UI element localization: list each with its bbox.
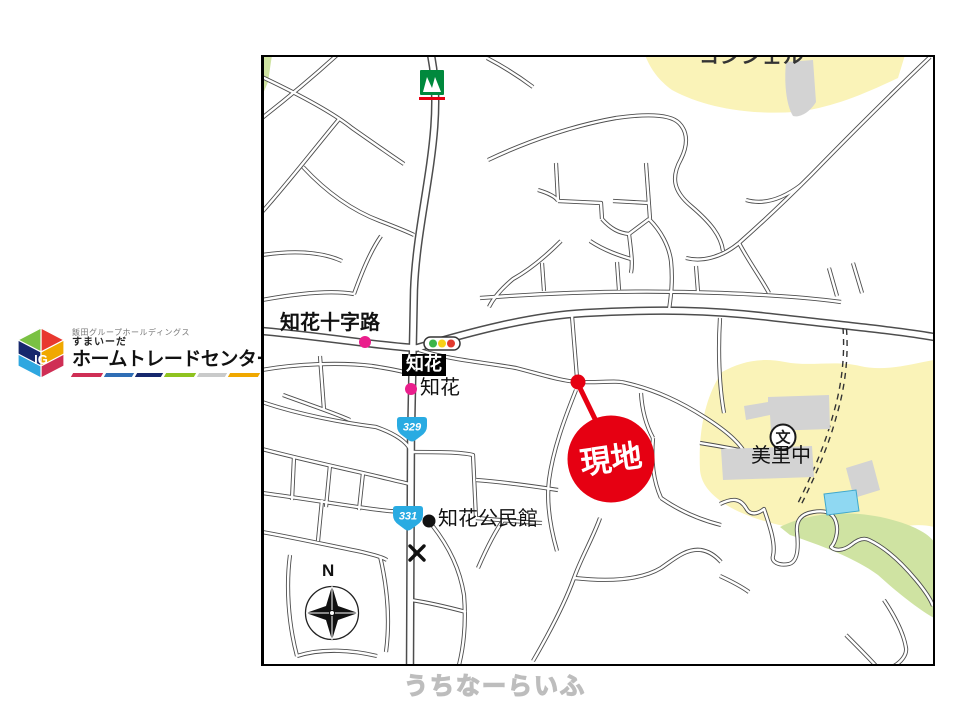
station-name-box: 知花	[402, 354, 446, 376]
logo-company-name: ホームトレードセンター	[72, 350, 275, 370]
svg-text:331: 331	[399, 511, 417, 523]
busstop-label: 知花	[420, 377, 460, 399]
park-area	[780, 513, 933, 618]
poi-dot-crossing	[359, 336, 371, 348]
community-center-label: 知花公民館	[438, 508, 538, 530]
svg-text:329: 329	[403, 422, 422, 434]
site-dot	[571, 375, 586, 390]
location-map: 329 331 文	[261, 55, 935, 666]
roads-group	[264, 57, 933, 664]
compass-rose-icon	[306, 586, 359, 640]
svg-text:文: 文	[775, 429, 791, 447]
logo-cube-icon: IG	[16, 326, 66, 380]
traffic-light-icon	[424, 337, 460, 350]
poi-dot-community-center	[423, 515, 436, 528]
north-label: N	[322, 562, 334, 581]
school-pool	[824, 490, 859, 515]
concierge-label: コンシェル	[699, 55, 804, 68]
building-concierge	[785, 60, 816, 116]
poi-dot-busstop	[405, 383, 417, 395]
map-canvas: 329 331 文	[264, 57, 933, 664]
flyer-page: IG 飯田グループホールディングス すまいーだ ホームトレードセンター	[0, 0, 960, 720]
crossing-label: 知花十字路	[280, 312, 380, 334]
logo-brand: すまいーだ	[72, 338, 275, 349]
logo-underline-bars	[72, 373, 275, 377]
school-label: 美里中	[751, 445, 811, 467]
watermark-text: うちなーらいふ	[404, 666, 586, 701]
company-logo: IG 飯田グループホールディングス すまいーだ ホームトレードセンター	[16, 318, 252, 388]
route-badge-331: 331	[393, 506, 423, 531]
logo-initials: IG	[34, 352, 48, 367]
